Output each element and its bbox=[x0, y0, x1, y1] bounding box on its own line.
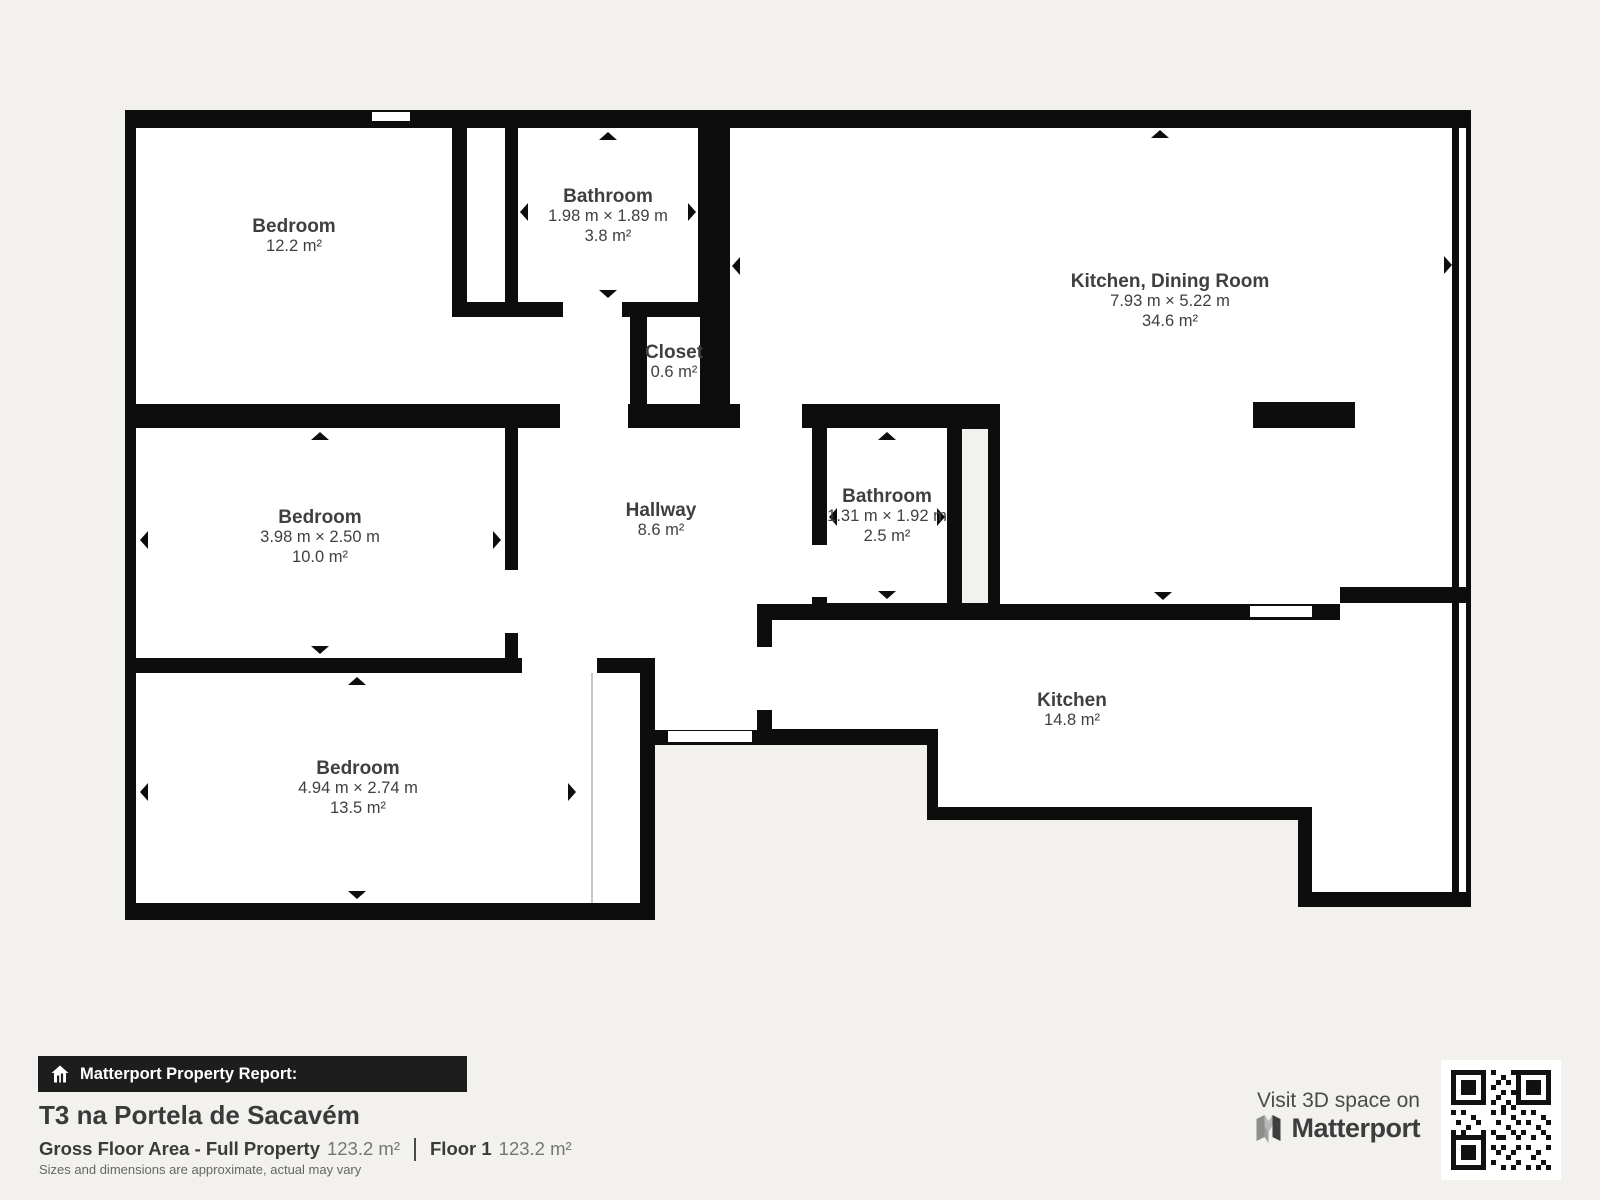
property-title: T3 na Portela de Sacavém bbox=[39, 1100, 360, 1131]
door-bathroom-top bbox=[563, 302, 622, 317]
door-hall-to-foyer bbox=[560, 404, 628, 428]
door-bathroom-middle bbox=[812, 545, 827, 597]
qr-code-pattern bbox=[1441, 1060, 1561, 1180]
room-area-duct-nook bbox=[467, 128, 505, 302]
brand-logo-row: Matterport bbox=[1254, 1113, 1421, 1144]
room-area-bedroom-middle bbox=[136, 428, 505, 658]
right-facade-strip-upper bbox=[1459, 128, 1466, 587]
disclaimer-text: Sizes and dimensions are approximate, ac… bbox=[39, 1162, 361, 1177]
floor-plan-canvas bbox=[0, 0, 1600, 1200]
brand-wordmark: Matterport bbox=[1292, 1113, 1421, 1144]
room-area-bedroom-bottom bbox=[136, 673, 640, 903]
room-area-kitchen bbox=[772, 603, 1452, 892]
door-kitchen-dining-to-hall bbox=[740, 404, 802, 428]
room-area-bathroom-top bbox=[518, 128, 698, 302]
floor-plan-report-page: { "plan": { "wall_color": "#0d0d0d", "ba… bbox=[0, 0, 1600, 1200]
house-chart-icon bbox=[50, 1064, 70, 1084]
door-corridor-exterior bbox=[668, 731, 752, 742]
gfa-value: 123.2 m² bbox=[327, 1138, 400, 1160]
report-header-bar: Matterport Property Report: bbox=[38, 1056, 467, 1092]
floor-value: 123.2 m² bbox=[499, 1138, 572, 1160]
report-bar-label: Matterport Property Report: bbox=[80, 1065, 297, 1084]
gfa-label: Gross Floor Area - Full Property bbox=[39, 1138, 320, 1160]
door-bedroom-bottom bbox=[522, 658, 597, 673]
right-facade-strip-lower bbox=[1459, 603, 1466, 892]
matterport-logo-icon bbox=[1254, 1114, 1283, 1144]
light-well-strip bbox=[962, 429, 988, 603]
door-bedroom-middle bbox=[505, 570, 518, 633]
room-area-bathroom-middle bbox=[827, 428, 947, 603]
window-top-wall bbox=[372, 112, 410, 121]
floor-label: Floor 1 bbox=[430, 1138, 492, 1160]
floor-area-row: Gross Floor Area - Full Property 123.2 m… bbox=[39, 1137, 572, 1161]
window-kitchen-passthrough bbox=[1250, 606, 1312, 617]
qr-code bbox=[1441, 1060, 1561, 1180]
divider bbox=[414, 1138, 416, 1161]
wardrobe-line-bedroom-bottom bbox=[591, 673, 593, 903]
door-kitchen bbox=[757, 647, 772, 710]
wall-stub-kitchen-dining bbox=[1253, 402, 1355, 428]
room-area-closet bbox=[647, 317, 700, 404]
visit-3d-text: Visit 3D space on bbox=[1257, 1089, 1420, 1113]
